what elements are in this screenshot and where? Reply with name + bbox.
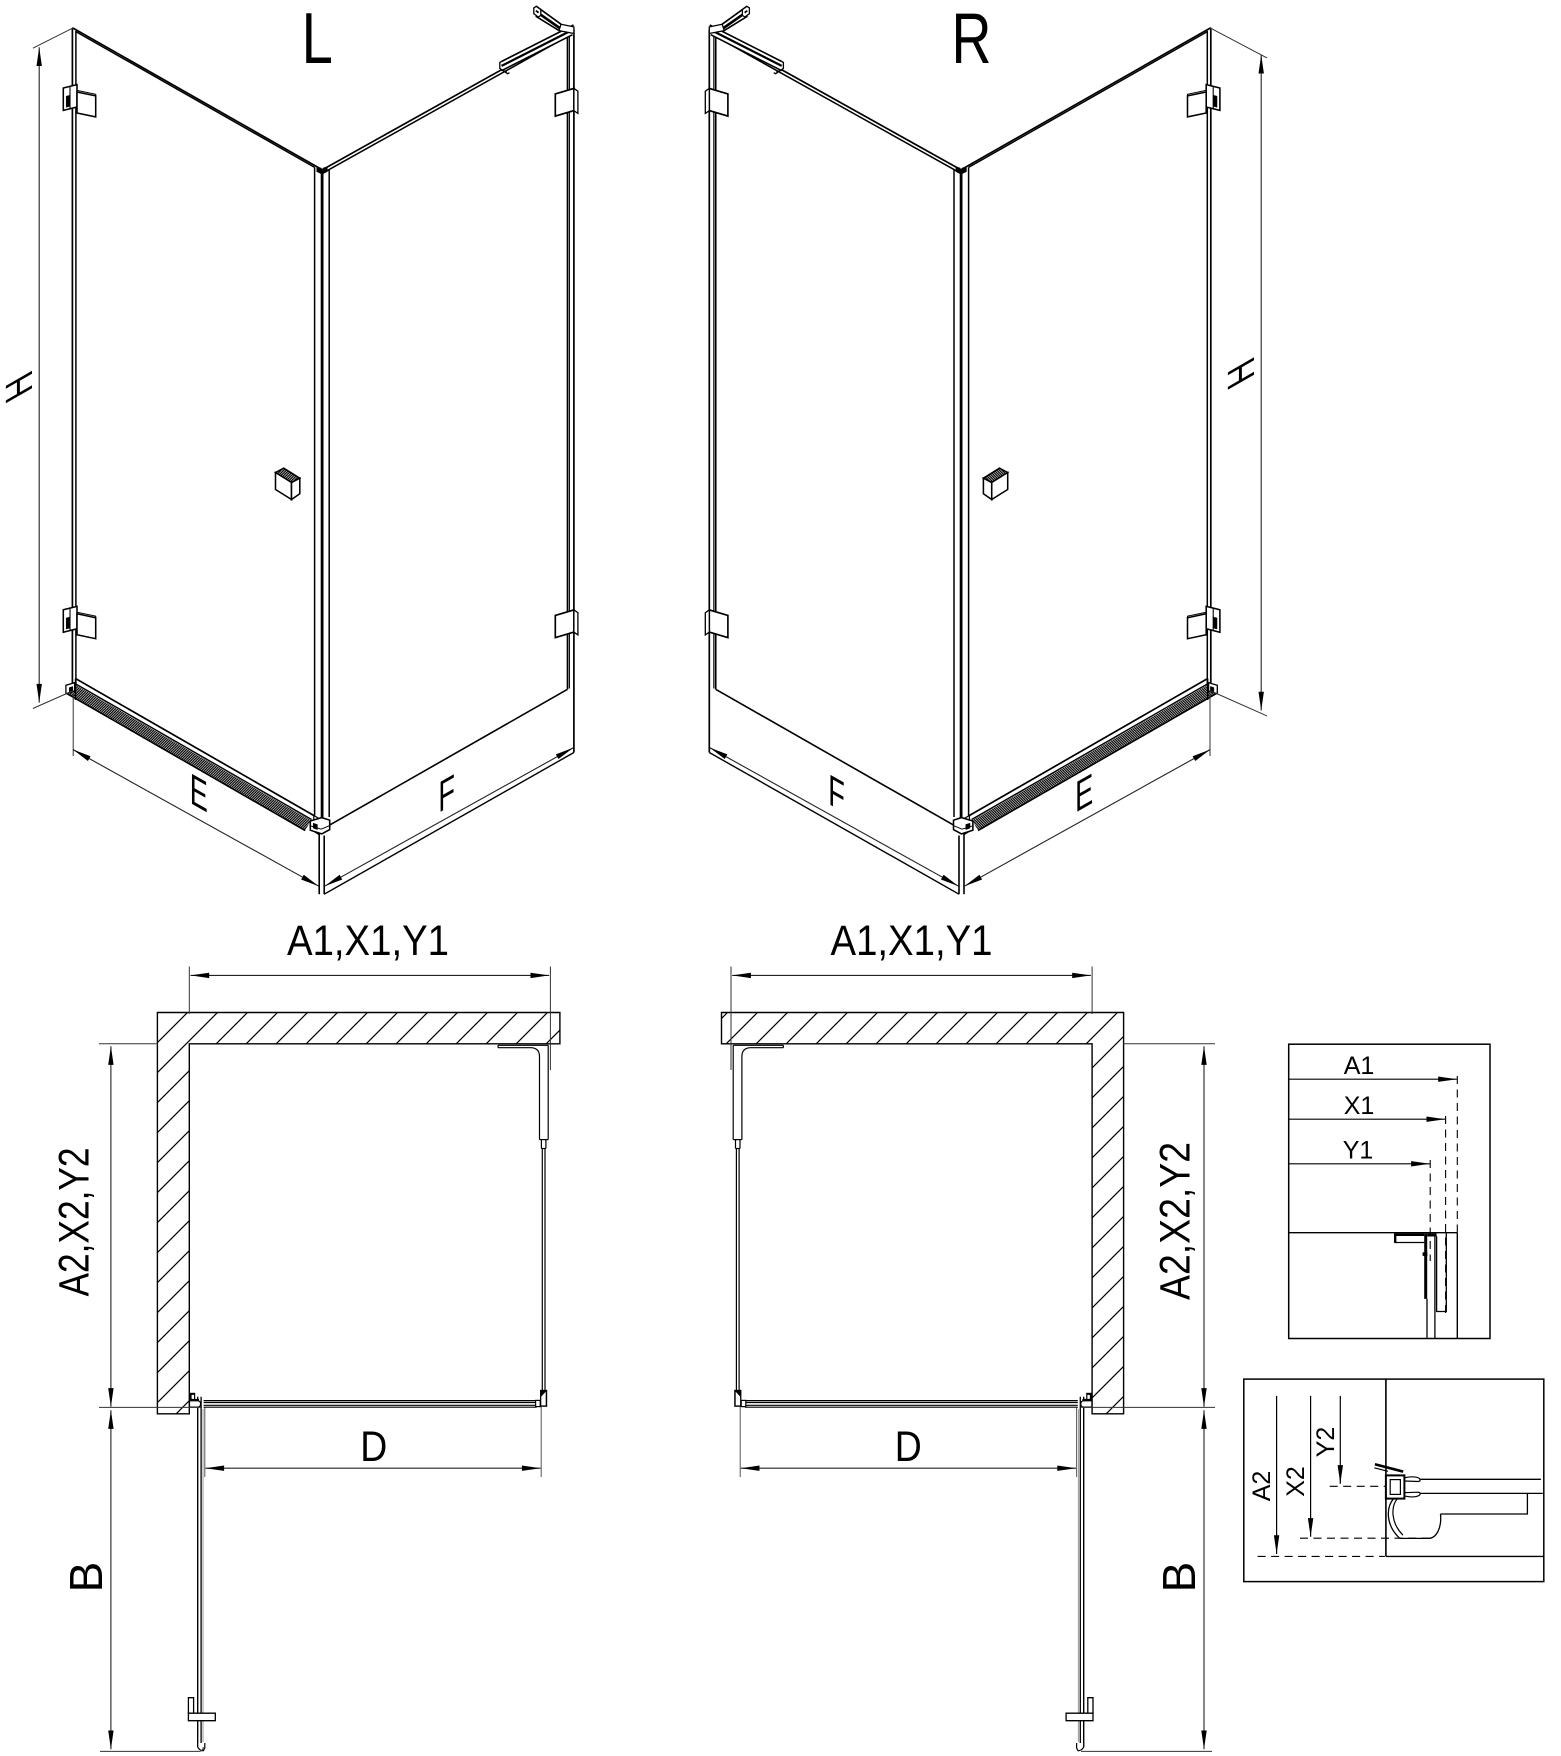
svg-text:D: D — [895, 1423, 922, 1471]
svg-text:A2: A2 — [1248, 1471, 1276, 1502]
svg-text:B: B — [1153, 1562, 1205, 1593]
svg-text:F: F — [438, 766, 455, 824]
svg-text:A1,X1,Y1: A1,X1,Y1 — [831, 917, 993, 965]
svg-text:A2,X2,Y2: A2,X2,Y2 — [1152, 1142, 1200, 1300]
svg-text:D: D — [360, 1423, 387, 1471]
svg-text:R: R — [952, 0, 992, 78]
svg-text:E: E — [190, 765, 208, 824]
svg-text:Y2: Y2 — [1312, 1427, 1340, 1458]
svg-text:A1: A1 — [1344, 1052, 1375, 1080]
svg-text:Y1: Y1 — [1343, 1137, 1374, 1165]
svg-text:A1,X1,Y1: A1,X1,Y1 — [287, 917, 449, 965]
svg-text:E: E — [1075, 765, 1093, 824]
svg-text:A2,X2,Y2: A2,X2,Y2 — [51, 1148, 99, 1297]
svg-text:B: B — [60, 1562, 112, 1593]
svg-text:X1: X1 — [1344, 1092, 1375, 1120]
svg-text:X2: X2 — [1282, 1466, 1310, 1497]
svg-text:L: L — [302, 0, 333, 79]
svg-text:F: F — [828, 766, 845, 824]
